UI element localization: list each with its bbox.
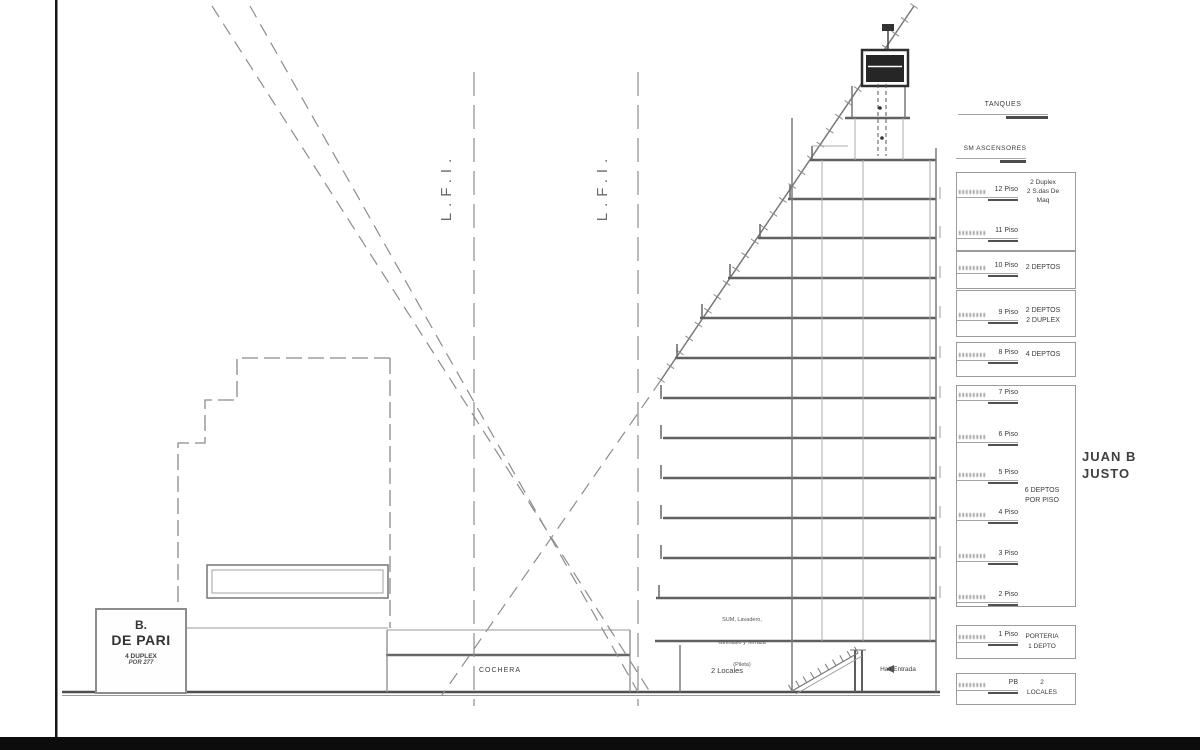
- amenities-line-1: SUM, Lavadero,: [702, 617, 782, 625]
- left-building-label-box: B. DE PARI 4 DUPLEX POR 277: [95, 608, 187, 694]
- floor-row-12: 12 Piso: [958, 187, 1018, 201]
- amenities-note: SUM, Lavadero, Gimnasio y Terraza (Pilet…: [702, 602, 782, 685]
- ascensores-callout: SM ASCENSORES: [954, 145, 1036, 152]
- water-tank-icon: [862, 24, 908, 86]
- left-building-name-1: B.: [97, 618, 185, 632]
- left-building-profile: [178, 358, 390, 692]
- floor-label: 4 Piso: [999, 508, 1018, 518]
- machine-room: [812, 86, 910, 160]
- floor-row-9: 9 Piso: [958, 310, 1018, 324]
- note-floor-1: PORTERIA 1 DEPTO: [1012, 632, 1072, 651]
- floor-row-10: 10 Piso: [958, 263, 1018, 277]
- floor-label: 2 Piso: [999, 590, 1018, 600]
- floor-row-6: 6 Piso: [958, 432, 1018, 446]
- floor-row-2: 2 Piso: [958, 592, 1018, 606]
- level-mark: [959, 266, 985, 270]
- tanques-callout: TANQUES: [958, 101, 1048, 108]
- ground-line: [62, 692, 940, 696]
- level-mark: [959, 313, 985, 317]
- ascensores-underline: [956, 158, 1026, 159]
- amenities-line-3: (Pileta): [702, 662, 782, 670]
- level-mark: [959, 683, 985, 687]
- note-floor-8: 4 DEPTOS: [1014, 351, 1072, 358]
- note-pb: 2 LOCALES: [1012, 678, 1072, 697]
- note-floor-10: 2 DEPTOS: [1014, 264, 1072, 271]
- floor-row-3: 3 Piso: [958, 551, 1018, 565]
- floor-row-1: 1 Piso: [958, 632, 1018, 646]
- tanques-underline: [958, 114, 1048, 115]
- elevator-shaft-lines: [878, 84, 886, 156]
- stair-icon: [789, 647, 862, 694]
- section-drawing-sheet: L.F.I. L.F.I. B. DE PARI 4 DUPLEX POR 27…: [0, 0, 1200, 750]
- floor-label: 3 Piso: [999, 549, 1018, 559]
- tanques-underline-dark: [1006, 116, 1048, 119]
- floor-row-7: 7 Piso: [958, 390, 1018, 404]
- floor-row-pb: PB: [958, 680, 1018, 694]
- floor-label: 7 Piso: [999, 388, 1018, 398]
- floor-label: 11 Piso: [995, 226, 1018, 236]
- hall-entrada-label: Hall Entrada: [860, 666, 936, 673]
- note-floors-7-2: 6 DEPTOS POR PISO: [1012, 486, 1072, 506]
- tower-floor-slabs: [655, 160, 936, 641]
- floor-label: 6 Piso: [999, 430, 1018, 440]
- floor-row-5: 5 Piso: [958, 470, 1018, 484]
- level-mark: [959, 635, 985, 639]
- left-building-name-2: DE PARI: [97, 632, 185, 648]
- note-floors-12-11: 2 Duplex 2 S.das De Maq: [1014, 178, 1072, 205]
- level-mark: [959, 435, 985, 439]
- ascensores-underline-dark: [1000, 160, 1026, 163]
- level-mark: [959, 353, 985, 357]
- note-floor-9: 2 DEPTOS 2 DUPLEX: [1014, 306, 1072, 325]
- envelope-diagonals: [212, 3, 918, 695]
- level-mark: [959, 513, 985, 517]
- amenities-line-2: Gimnasio y Terraza: [702, 640, 782, 648]
- cochera-outline: [386, 630, 630, 692]
- floor-row-4: 4 Piso: [958, 510, 1018, 524]
- left-building-detail-2: POR 277: [97, 660, 185, 666]
- level-mark: [959, 473, 985, 477]
- tower-walls: [792, 118, 936, 692]
- level-mark: [959, 393, 985, 397]
- level-mark: [959, 554, 985, 558]
- level-mark: [959, 595, 985, 599]
- street-name-label: JUAN B JUSTO: [1082, 448, 1152, 482]
- floor-row-8: 8 Piso: [958, 350, 1018, 364]
- lfi-label-right: L.F.I.: [594, 122, 612, 252]
- cochera-label: COCHERA: [458, 667, 542, 674]
- floor-label: 5 Piso: [999, 468, 1018, 478]
- floor-row-11: 11 Piso: [958, 228, 1018, 242]
- level-mark: [959, 190, 985, 194]
- level-mark: [959, 231, 985, 235]
- lfi-label-left: L.F.I.: [438, 122, 456, 252]
- left-building-detail-1: 4 DUPLEX: [97, 653, 185, 660]
- balcony-railings: [659, 385, 661, 599]
